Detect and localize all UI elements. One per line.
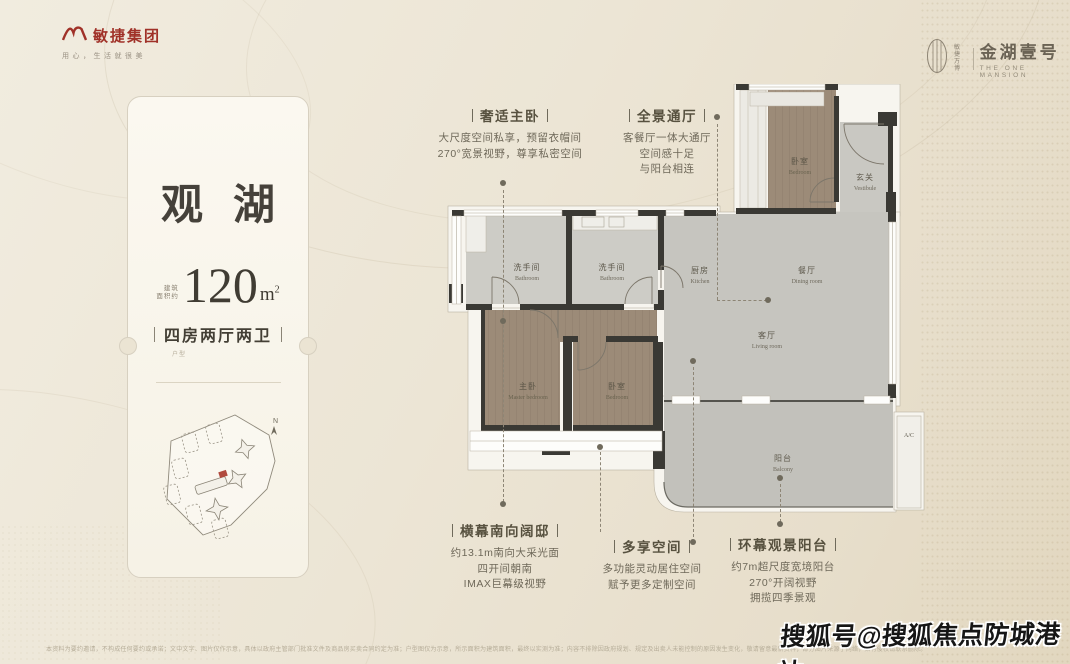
leader-dot [777, 475, 783, 481]
room-label-cn: 洗手间 [599, 262, 626, 272]
callout-title: 环幕观景阳台 [738, 534, 828, 554]
decor-bar [452, 524, 453, 537]
callout-south-facing: 横幕南向阔邸 约13.1m南向大采光面 四开间朝南 IMAX巨幕级视野 [425, 520, 585, 593]
callout-title: 多享空间 [622, 536, 682, 556]
leader-line [717, 300, 767, 301]
project-prefix-line: 敏捷 [954, 45, 967, 59]
layout-text: 四房两厅两卫 [164, 322, 272, 346]
leader-dot [597, 444, 603, 450]
callout-line: 四开间朝南 [425, 562, 585, 578]
svg-text:N: N [273, 418, 278, 425]
project-prefix-line: 万博 [954, 59, 967, 73]
leader-dot [500, 501, 506, 507]
leader-dot [777, 521, 783, 527]
card-notch [119, 337, 137, 355]
leader-dot [500, 180, 506, 186]
leader-dot [500, 318, 506, 324]
unit-area: 建筑 面积约 120 m2 [128, 260, 308, 310]
card-divider [156, 382, 281, 383]
developer-name: 敏捷集团 [93, 25, 161, 46]
callout-line: 约7m超尺度宽境阳台 [708, 560, 858, 576]
watermark-text: 搜狐号@搜狐焦点防城港站 [775, 615, 1070, 664]
decor-bar [689, 540, 690, 553]
decor-bar [154, 327, 155, 342]
room-label-cn: 洗手间 [514, 262, 541, 272]
project-name: 金湖壹号 [980, 38, 1070, 63]
unit-layout: 四房两厅两卫 [128, 322, 308, 346]
area-prefix-line: 面积约 [156, 293, 179, 301]
callout-line: 约13.1m南向大采光面 [425, 546, 585, 562]
callout-line: 赋予更多定制空间 [582, 578, 722, 594]
callout-view-balcony: 环幕观景阳台 约7m超尺度宽境阳台 270°开阔视野 拥揽四季景观 [708, 534, 858, 607]
room-label-cn: 厨房 [691, 265, 709, 275]
leader-dot [690, 358, 696, 364]
callout-title: 全景通厅 [637, 105, 697, 125]
area-unit: m2 [260, 284, 280, 306]
leader-dot [765, 297, 771, 303]
callout-multi-space: 多享空间 多功能灵动居住空间 赋予更多定制空间 [582, 536, 722, 593]
room-label-cn: 卧室 [791, 156, 809, 166]
room-label-en: Bathroom [600, 276, 624, 282]
decor-bar [557, 524, 558, 537]
decor-bar [835, 538, 836, 551]
callout-master-bedroom: 奢适主卧 大尺度空间私享，预留衣帽间 270°宽景视野，尊享私密空间 [425, 105, 595, 162]
callout-line: 与阳台相连 [603, 162, 731, 178]
room-label-en: Dining room [792, 279, 823, 285]
agile-logo-icon [62, 24, 88, 47]
room-label-cn: 玄关 [856, 172, 874, 182]
callout-line: IMAX巨幕级视野 [425, 577, 585, 593]
decor-bar [730, 538, 731, 551]
poster-page: 敏捷集团 用心，生活就很美 敏捷 万博 金湖壹号 THE ONE MANSION… [0, 0, 1070, 664]
callout-line: 客餐厅一体大通厅 [603, 131, 731, 147]
layout-note: 户型 [128, 349, 308, 358]
project-prefix: 敏捷 万博 [954, 45, 967, 73]
room-label-en: Bedroom [789, 170, 812, 176]
callout-line: 拥揽四季景观 [708, 591, 858, 607]
decor-bar [472, 109, 473, 122]
logo-divider [973, 48, 974, 70]
room-label-ac: A/C [904, 433, 914, 439]
room-label-en: Kitchen [691, 279, 710, 285]
room-label-cn: 卧室 [608, 381, 626, 391]
callout-title: 横幕南向阔邸 [460, 520, 550, 540]
unit-info-card: 观湖 建筑 面积约 120 m2 四房两厅两卫 户型 [127, 96, 309, 578]
leader-line [600, 452, 601, 532]
developer-tagline: 用心，生活就很美 [62, 51, 161, 61]
leader-line [693, 367, 694, 537]
project-logo: 敏捷 万博 金湖壹号 THE ONE MANSION [926, 38, 1070, 79]
room-label-en: Balcony [773, 467, 793, 473]
texture-speckle-right [920, 0, 1070, 664]
callout-line: 空间感十足 [603, 147, 731, 163]
lantern-logo-icon [926, 38, 948, 79]
room-label-en: Master bedroom [508, 395, 548, 401]
project-name-en: THE ONE MANSION [980, 65, 1070, 79]
room-label-cn: 客厅 [758, 330, 776, 340]
room-label-cn: 主卧 [519, 381, 537, 391]
decor-bar [547, 109, 548, 122]
room-label-cn: 阳台 [774, 453, 792, 463]
decor-bar [281, 327, 282, 342]
leader-line [503, 190, 504, 502]
callout-line: 多功能灵动居住空间 [582, 562, 722, 578]
room-label-cn: 餐厅 [798, 266, 816, 275]
room-label-en: Bedroom [606, 395, 629, 401]
developer-logo: 敏捷集团 用心，生活就很美 [62, 24, 161, 61]
decor-bar [614, 540, 615, 553]
area-value: 120 [183, 260, 258, 310]
room-label-en: Bathroom [515, 276, 539, 282]
siteplan: N [128, 391, 308, 578]
leader-line [780, 484, 781, 522]
callout-line: 大尺度空间私享，预留衣帽间 [425, 131, 595, 147]
decor-bar [704, 109, 705, 122]
room-label-en: Living room [752, 344, 782, 350]
unit-name: 观湖 [128, 171, 308, 232]
card-notch [299, 337, 317, 355]
callout-title: 奢适主卧 [480, 105, 540, 125]
decor-bar [629, 109, 630, 122]
callout-line: 270°宽景视野，尊享私密空间 [425, 147, 595, 163]
callout-open-hall: 全景通厅 客餐厅一体大通厅 空间感十足 与阳台相连 [603, 105, 731, 178]
area-prefix-line: 建筑 [156, 285, 179, 293]
north-arrow-icon: N [271, 418, 278, 435]
callout-line: 270°开阔视野 [708, 576, 858, 592]
room-label-en: Vestibule [854, 186, 877, 192]
